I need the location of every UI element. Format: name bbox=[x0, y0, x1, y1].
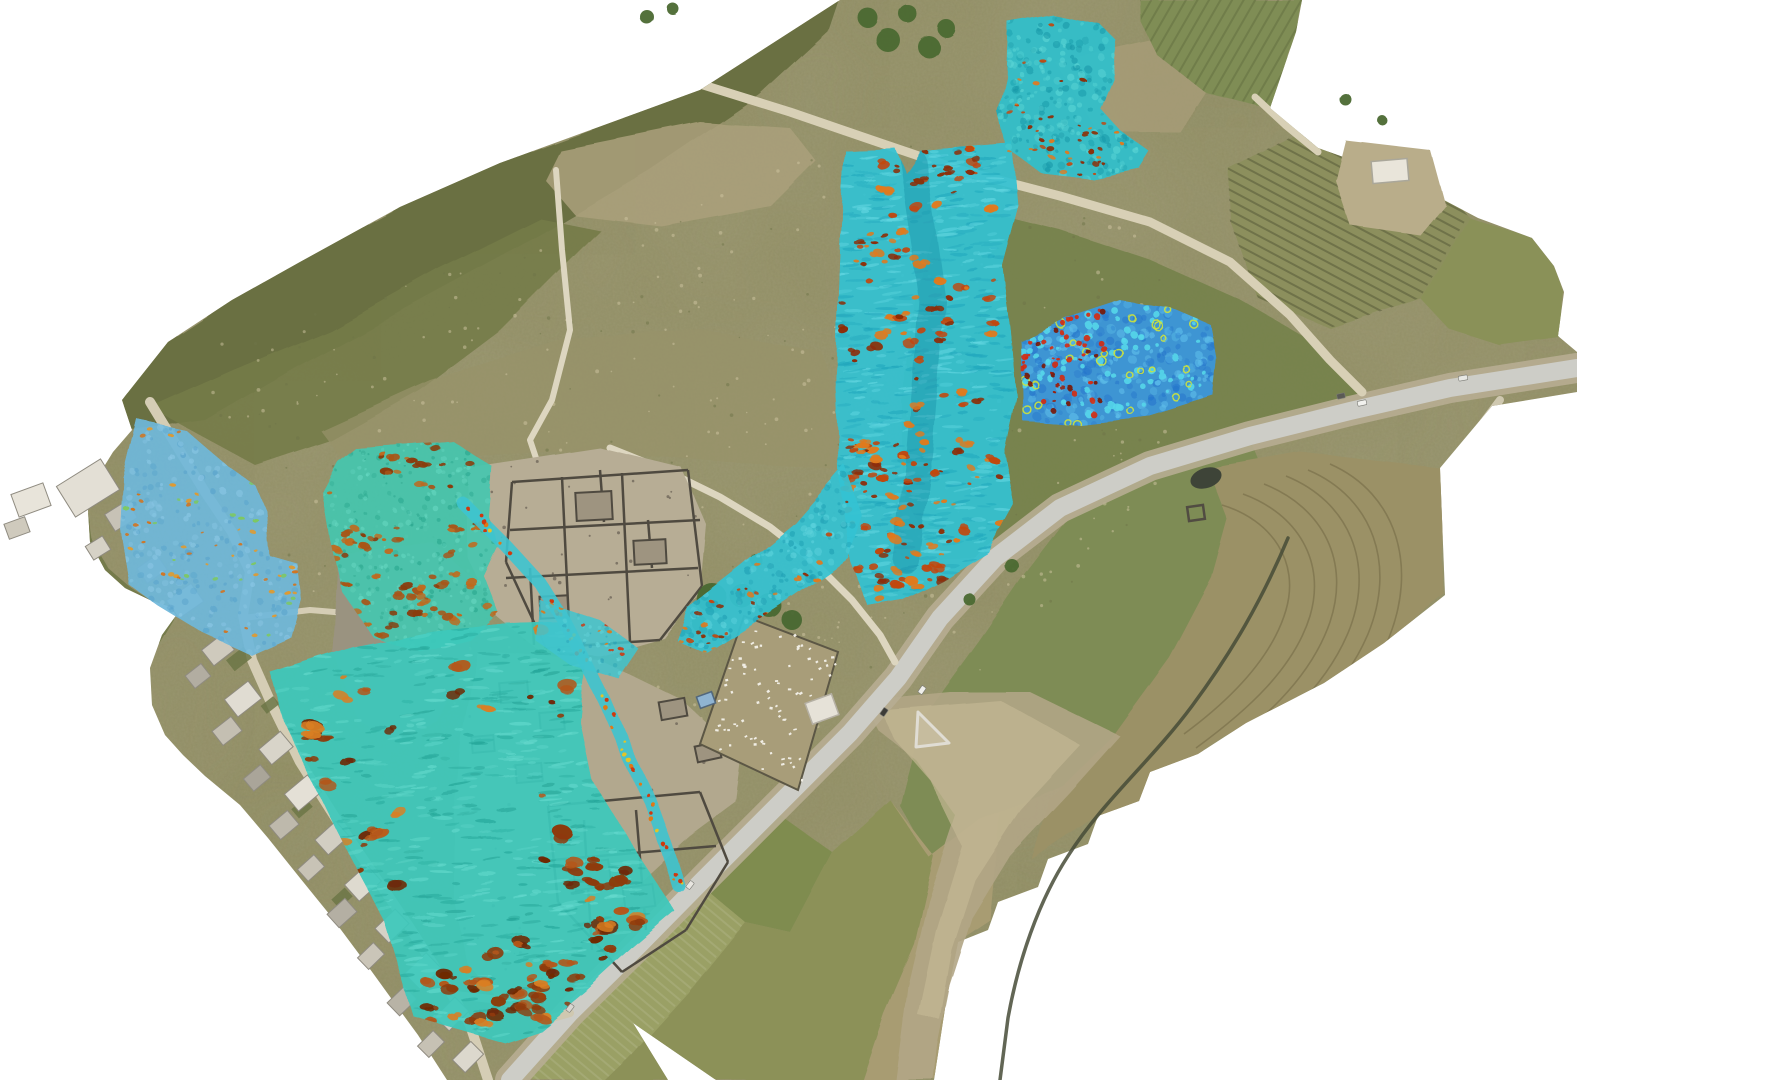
gravestone bbox=[742, 664, 745, 667]
gravestone bbox=[770, 752, 773, 755]
gravestone bbox=[761, 768, 764, 770]
gravestone bbox=[810, 678, 813, 680]
tree bbox=[937, 19, 955, 37]
gravestone bbox=[775, 680, 778, 682]
gravestone bbox=[801, 779, 803, 782]
tree bbox=[917, 35, 939, 57]
tree bbox=[1340, 94, 1352, 106]
tree bbox=[782, 610, 802, 630]
gravestone bbox=[760, 645, 762, 647]
tree bbox=[1377, 115, 1387, 125]
gravestone bbox=[732, 659, 734, 661]
orthophoto-svg bbox=[0, 0, 1777, 1080]
gravestone bbox=[721, 718, 724, 720]
gravestone bbox=[777, 682, 780, 684]
tree bbox=[666, 2, 678, 14]
farm-building bbox=[1371, 158, 1409, 183]
gravestone bbox=[788, 688, 791, 690]
gravestone bbox=[831, 656, 834, 658]
ruin-block bbox=[633, 539, 666, 565]
village-building bbox=[11, 483, 51, 517]
gravestone bbox=[733, 723, 736, 725]
gravestone bbox=[724, 699, 727, 701]
tree bbox=[964, 594, 976, 606]
gravestone bbox=[742, 641, 745, 643]
tree bbox=[858, 8, 878, 28]
tree bbox=[639, 9, 653, 23]
tree bbox=[876, 28, 900, 52]
survey-patch-main bbox=[827, 142, 1020, 606]
gravestone bbox=[769, 707, 773, 710]
village-building bbox=[4, 517, 30, 540]
gravestone bbox=[728, 668, 731, 670]
gravestone bbox=[754, 743, 757, 746]
gravestone bbox=[715, 729, 719, 732]
tree bbox=[1005, 559, 1019, 573]
gravestone bbox=[729, 744, 731, 746]
farm-compound-ne bbox=[1335, 140, 1445, 235]
ruin-block bbox=[575, 491, 612, 521]
tree bbox=[899, 5, 917, 23]
gravestone bbox=[739, 657, 742, 660]
ruin-block bbox=[659, 698, 688, 720]
orthophoto-map bbox=[0, 0, 1777, 1080]
gravestone bbox=[727, 729, 730, 731]
gravestone bbox=[754, 646, 758, 649]
